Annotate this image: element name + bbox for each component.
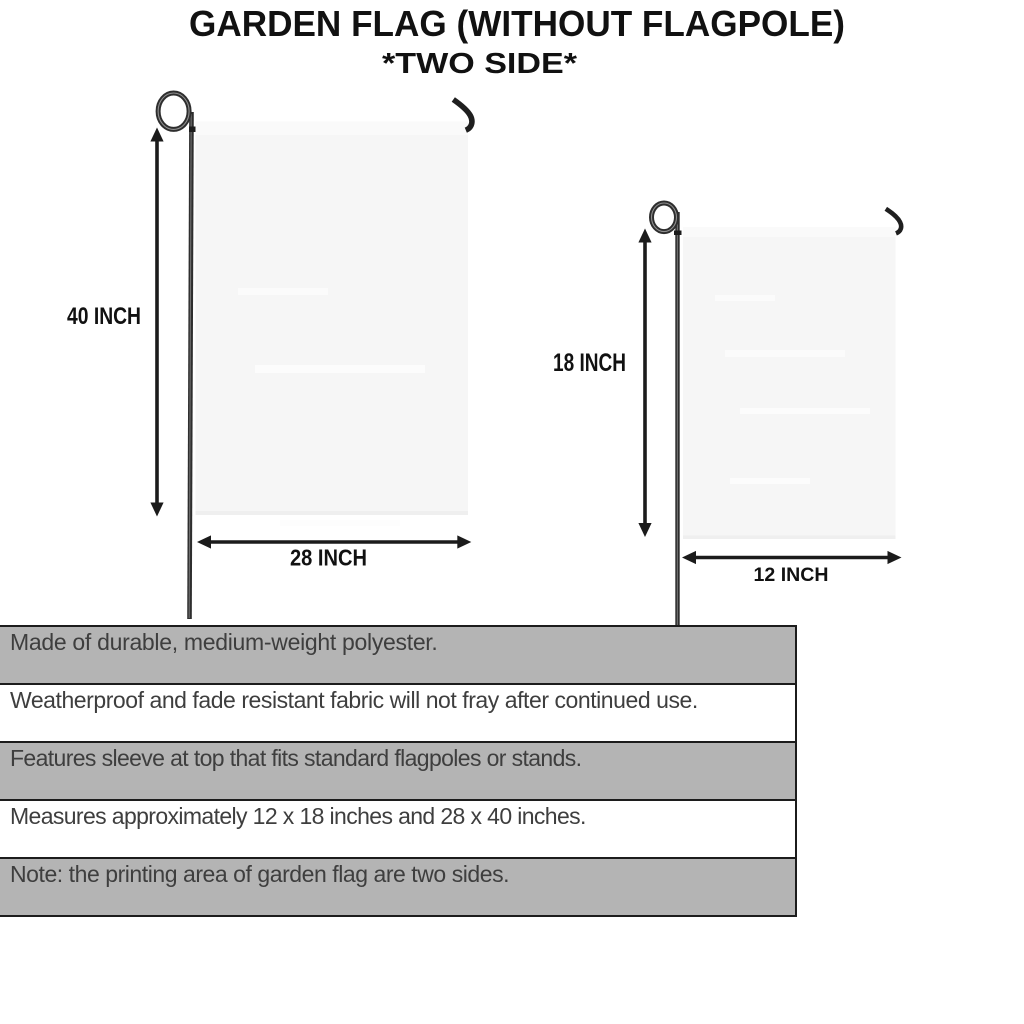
svg-text:*TWO SIDE*: *TWO SIDE* (382, 48, 578, 80)
svg-text:28 INCH: 28 INCH (290, 545, 367, 571)
svg-text:GARDEN FLAG (WITHOUT FLAGPOLE): GARDEN FLAG (WITHOUT FLAGPOLE) (189, 3, 845, 44)
svg-text:40 INCH: 40 INCH (67, 303, 141, 330)
svg-text:12 INCH: 12 INCH (754, 565, 829, 586)
svg-text:18 INCH: 18 INCH (553, 349, 626, 377)
